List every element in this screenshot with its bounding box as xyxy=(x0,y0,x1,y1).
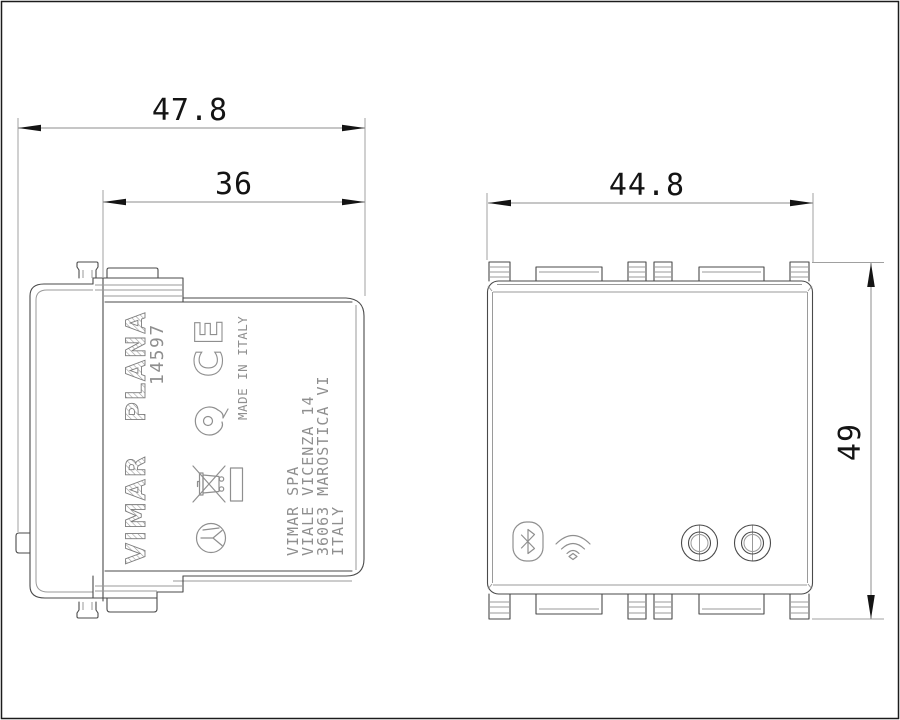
made-in-label: MADE IN ITALY xyxy=(235,316,250,420)
long-tabs-top xyxy=(536,267,764,281)
dimension-value: 49 xyxy=(833,423,868,461)
small-tabs-bottom xyxy=(489,594,809,619)
address-line: ITALY xyxy=(329,506,347,556)
top-tabs xyxy=(489,262,809,281)
bottom-block-cap xyxy=(107,598,157,612)
front-view: 44.8 49 xyxy=(487,168,884,619)
article-number: 14597 xyxy=(147,323,168,385)
technical-drawing: 47.8 36 xyxy=(0,0,900,720)
ce-mark: CE xyxy=(188,315,231,377)
back-plate-inner xyxy=(36,290,93,592)
side-view: 47.8 36 xyxy=(16,93,365,618)
arrowhead-up xyxy=(867,263,875,287)
bottom-clip xyxy=(77,602,98,618)
wifi-icon xyxy=(556,536,590,560)
bottom-clip-detail xyxy=(83,602,92,610)
dimension-value: 36 xyxy=(215,167,253,202)
imq-mark-icon xyxy=(195,407,228,435)
circle-fork-symbol xyxy=(197,524,226,553)
arrowhead-left xyxy=(18,125,41,132)
bluetooth-icon xyxy=(513,522,543,561)
front-view-outline xyxy=(488,262,813,619)
drawing-canvas: 47.8 36 xyxy=(0,0,900,720)
side-fixing-tab xyxy=(16,533,30,553)
front-body xyxy=(488,281,813,594)
dimension-front-height: 49 xyxy=(812,263,884,620)
side-view-marking: VIMAR PLANA 14597 CE MADE IN ITALY xyxy=(121,311,347,564)
brand-logo-text: VIMAR xyxy=(121,455,152,565)
arrowhead-right xyxy=(342,125,365,132)
dimension-value: 47.8 xyxy=(152,93,228,128)
back-plate xyxy=(30,284,93,598)
arrowhead-right xyxy=(342,199,365,206)
bottom-block xyxy=(93,576,183,598)
front-body-inner xyxy=(493,292,808,585)
dimension-value: 44.8 xyxy=(609,168,685,203)
small-tab-lamination xyxy=(489,602,809,613)
arrowhead-left xyxy=(488,200,511,207)
top-block-cap xyxy=(107,268,158,278)
button-left xyxy=(682,525,718,562)
arrowhead-down xyxy=(867,595,875,619)
weee-crossed-bin-icon xyxy=(193,466,225,502)
long-tabs-bottom xyxy=(536,594,764,614)
arrowhead-left xyxy=(103,199,126,206)
bottom-tabs xyxy=(489,594,809,619)
arrowhead-right xyxy=(790,200,813,207)
button-right xyxy=(735,525,771,562)
top-clip xyxy=(77,262,98,278)
rectangle-symbol xyxy=(231,468,243,501)
bottom-block-lines xyxy=(95,586,183,591)
top-block-lines xyxy=(95,285,183,296)
top-clip-detail xyxy=(83,270,92,278)
manufacturer-address: VIMAR SPA VIALE VICENZA 14 36063 MAROSTI… xyxy=(284,375,347,556)
dimension-recess-depth: 36 xyxy=(103,167,365,277)
dimension-front-width: 44.8 xyxy=(487,168,813,262)
